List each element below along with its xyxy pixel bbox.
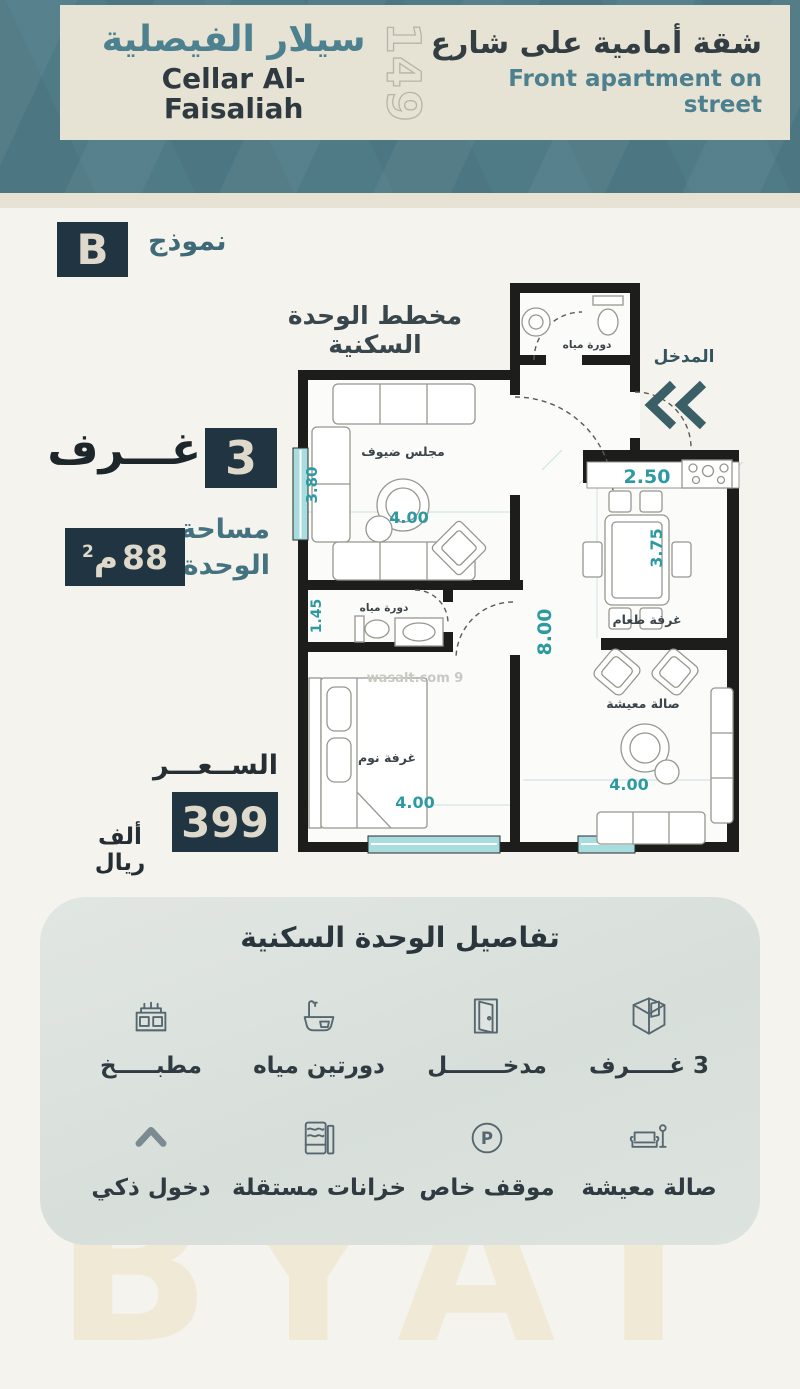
toilet-icon: [593, 296, 623, 305]
floor-plan: دورة مياه مجلس ضيوف دورة مياه غرفة نوم غ…: [287, 280, 747, 868]
unit-area-label-line1: مساحة: [188, 512, 270, 548]
room-label-living: صالة معيشة: [606, 696, 680, 711]
project-name-arabic: سيلار الفيصلية: [94, 20, 373, 60]
door-icon: [466, 995, 508, 1037]
rooms-cube-icon: [628, 995, 670, 1037]
feature-kitchen: مطبـــــخ: [70, 983, 232, 1079]
feature-label: موقف خاص: [419, 1175, 554, 1201]
apartment-type-block: شقة أمامية على شارع Front apartment on s…: [427, 27, 762, 118]
plan-watermark: wasalt.com 9: [367, 671, 464, 686]
unit-area-value-box: 88 م2: [65, 528, 185, 586]
smart-entry-icon: [130, 1117, 172, 1159]
price-value-box: 399: [172, 792, 278, 852]
sofa: [333, 384, 475, 424]
toilet-icon: [355, 616, 364, 642]
dim-kitchen-width: 2.50: [624, 466, 671, 488]
price-label: الســعـــر: [170, 750, 278, 781]
dim-living-width: 4.00: [609, 775, 648, 794]
header-divider-strip: [0, 193, 800, 208]
header-panel: شقة أمامية على شارع Front apartment on s…: [60, 5, 790, 140]
kitchen-icon: [130, 995, 172, 1037]
svg-text:P: P: [481, 1129, 493, 1148]
feature-entrance: مدخـــــــل: [406, 983, 568, 1079]
feature-living-room: صالة معيشة: [568, 1105, 730, 1201]
feature-label: صالة معيشة: [581, 1175, 716, 1201]
feature-label: دورتين مياه: [253, 1053, 385, 1079]
feature-smart-entry: دخول ذكي: [70, 1105, 232, 1201]
model-label: نموذج: [148, 226, 226, 257]
room-label-bathroom-top: دورة مياه: [563, 339, 612, 351]
apartment-type-arabic: شقة أمامية على شارع: [427, 27, 762, 62]
feature-label: مدخـــــــل: [427, 1053, 547, 1079]
rooms-count-value: 3: [205, 428, 277, 488]
brochure-page: { "colors":{"band_teal":"#4f7b87","panel…: [0, 0, 800, 1359]
rooms-count-label: غـــرف: [66, 424, 201, 475]
unit-number-149: 149: [373, 12, 427, 134]
project-name-block: سيلار الفيصلية Cellar Al-Faisaliah: [94, 20, 373, 125]
entrance-label: المدخل: [654, 347, 715, 367]
details-panel: تفاصيل الوحدة السكنية 3 غـــــرف مدخــــ…: [40, 897, 760, 1245]
sofa: [597, 812, 705, 844]
model-letter-badge: B: [57, 222, 128, 277]
price-unit-label: ألف ريال: [72, 824, 168, 876]
dim-hall-height: 8.00: [534, 609, 556, 656]
tanks-icon: [298, 1117, 340, 1159]
room-label-bedroom: غرفة نوم: [358, 750, 416, 766]
unit-area-label-line2: الوحدة: [188, 548, 270, 584]
feature-bathrooms: دورتين مياه: [232, 983, 406, 1079]
feature-label: خزانات مستقلة: [232, 1175, 406, 1201]
feature-tanks: خزانات مستقلة: [232, 1105, 406, 1201]
dim-bedroom-width: 4.00: [395, 793, 434, 812]
sofa: [711, 688, 733, 823]
feature-label: مطبـــــخ: [100, 1053, 202, 1079]
room-label-guest-majlis: مجلس ضيوف: [361, 444, 444, 459]
details-title: تفاصيل الوحدة السكنية: [40, 921, 760, 954]
dim-bath-height: 1.45: [309, 599, 325, 634]
dim-majlis-width: 4.00: [389, 508, 428, 527]
project-name-english: Cellar Al-Faisaliah: [94, 64, 373, 126]
feature-parking: P موقف خاص: [406, 1105, 568, 1201]
feature-label: دخول ذكي: [91, 1175, 210, 1201]
bed-headboard: [309, 678, 321, 828]
feature-label: 3 غـــــرف: [589, 1053, 709, 1079]
unit-area-number: 88: [122, 538, 168, 577]
features-grid: 3 غـــــرف مدخـــــــل دورتين مياه: [70, 983, 730, 1201]
svg-text:149: 149: [377, 21, 428, 123]
parking-icon: P: [466, 1117, 508, 1159]
apartment-type-english: Front apartment on street: [427, 67, 762, 118]
unit-area-label: مساحة الوحدة: [188, 512, 270, 585]
room-label-dining: غرفة طعام: [612, 612, 681, 628]
bathtub-icon: [298, 995, 340, 1037]
sofa-icon: [628, 1117, 670, 1159]
room-label-bathroom-small: دورة مياه: [360, 602, 409, 614]
entrance-chevrons-icon: [651, 384, 703, 426]
unit-area-unit: م2: [82, 538, 118, 577]
dim-majlis-height: 3.80: [303, 466, 321, 503]
dim-dining-height: 3.75: [647, 528, 666, 567]
feature-rooms: 3 غـــــرف: [568, 983, 730, 1079]
